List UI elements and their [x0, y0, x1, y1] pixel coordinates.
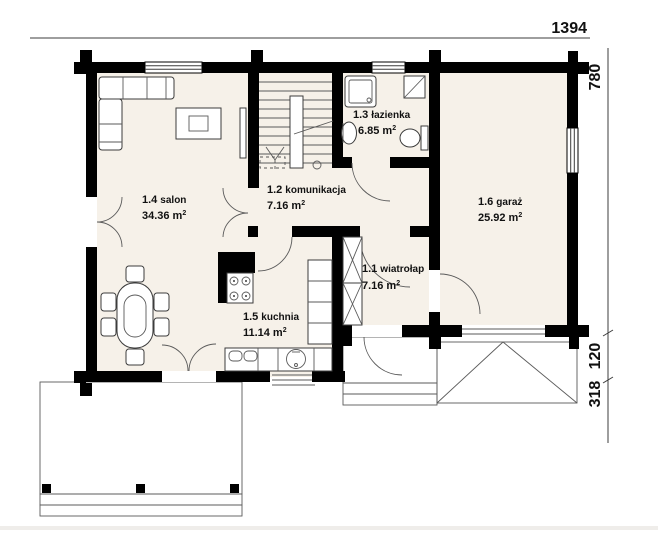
page-edge — [0, 526, 658, 530]
kitchen-cabinets — [308, 260, 332, 344]
chair — [126, 266, 144, 282]
terrace-post — [230, 484, 239, 493]
room-label-salon: 1.4salon — [142, 194, 186, 206]
wall-mid — [248, 226, 258, 237]
corner-stub — [343, 337, 352, 346]
wall-kitchen-hall — [332, 237, 343, 382]
wall-garage-front — [545, 325, 578, 337]
apron-slab — [437, 342, 577, 403]
wall-bath-south — [332, 157, 352, 168]
room-area-wiatrolap: 7.16m2 — [362, 280, 400, 292]
apron-diagonal — [503, 342, 577, 403]
wash-basin — [342, 122, 357, 144]
wall-mid — [292, 226, 360, 237]
terrace — [40, 382, 242, 516]
terrace-deck — [40, 382, 242, 494]
counter-block — [218, 252, 255, 273]
wall-south-salon — [86, 371, 162, 382]
room-area-lazienka: 6.85m2 — [358, 125, 396, 137]
wall-east — [567, 173, 578, 337]
dimension-top-width: 1394 — [551, 20, 587, 37]
driveway-apron — [437, 342, 577, 403]
terrace-post — [136, 484, 145, 493]
dining-table — [117, 283, 153, 348]
terrace-step — [40, 494, 242, 505]
corner-stub — [74, 371, 86, 383]
wall-mid — [410, 226, 440, 237]
room-label-komunikacja: 1.2komunikacja — [267, 184, 346, 196]
washer — [404, 76, 425, 98]
entrance-door — [352, 325, 402, 375]
corner-stub — [578, 325, 589, 337]
wall-stair — [248, 62, 259, 188]
corner-stub — [251, 50, 263, 62]
room-label-lazienka: 1.3łazienka — [353, 109, 411, 121]
chair — [154, 318, 169, 336]
room-label-kuchnia: 1.5kuchnia — [243, 311, 300, 323]
room-label-wiatrolap: 1.1wiatrołap — [362, 263, 424, 275]
dimension-right-upper: 120 — [587, 343, 604, 370]
shower — [345, 76, 376, 107]
corner-stub — [80, 383, 92, 396]
lower-counter — [225, 348, 332, 371]
corner-stub — [429, 50, 441, 62]
apron-diagonal — [437, 342, 503, 403]
wall-bath-south — [390, 157, 440, 168]
dimension-right-total: 780 — [587, 64, 604, 91]
window-bathroom — [372, 62, 405, 73]
porch-slab — [343, 337, 437, 405]
room-area-salon: 34.36m2 — [142, 210, 186, 222]
wardrobe — [343, 237, 362, 325]
corner-stub — [429, 337, 441, 349]
wall-east — [567, 62, 578, 128]
chair — [154, 293, 169, 311]
wall-bath-west — [332, 62, 343, 168]
wall-hall-front — [332, 325, 352, 337]
chair — [126, 349, 144, 365]
tv-bench — [240, 108, 246, 158]
coffee-table — [176, 108, 221, 139]
corner-stub — [569, 337, 579, 349]
room-label-garaz: 1.6garaż — [478, 196, 522, 208]
window-salon — [145, 62, 202, 73]
corner-stub — [80, 50, 92, 62]
garage-gate — [462, 325, 545, 337]
floor-plan-page: 1394 780 120 318 1.1wiatrołap 7.16m2 1.2… — [0, 0, 658, 535]
dimension-right-lower: 318 — [587, 381, 604, 408]
corner-stub — [74, 62, 86, 74]
wall-south-kitchen — [216, 371, 270, 382]
window-garage — [567, 128, 578, 173]
floor-plan-drawing: 1394 780 120 318 1.1wiatrołap 7.16m2 1.2… — [0, 0, 658, 535]
terrace-post — [42, 484, 51, 493]
counter-block — [218, 273, 227, 303]
chair — [101, 318, 116, 336]
room-area-kuchnia: 11.14m2 — [243, 327, 287, 339]
entrance-porch — [343, 337, 437, 405]
chair — [101, 293, 116, 311]
terrace-step — [40, 505, 242, 516]
wall-garage-front — [429, 325, 462, 337]
stove — [227, 273, 253, 303]
corner-stub — [568, 51, 578, 62]
room-area-garaz: 25.92m2 — [478, 212, 522, 224]
room-area-komunikacja: 7.16m2 — [267, 200, 305, 212]
